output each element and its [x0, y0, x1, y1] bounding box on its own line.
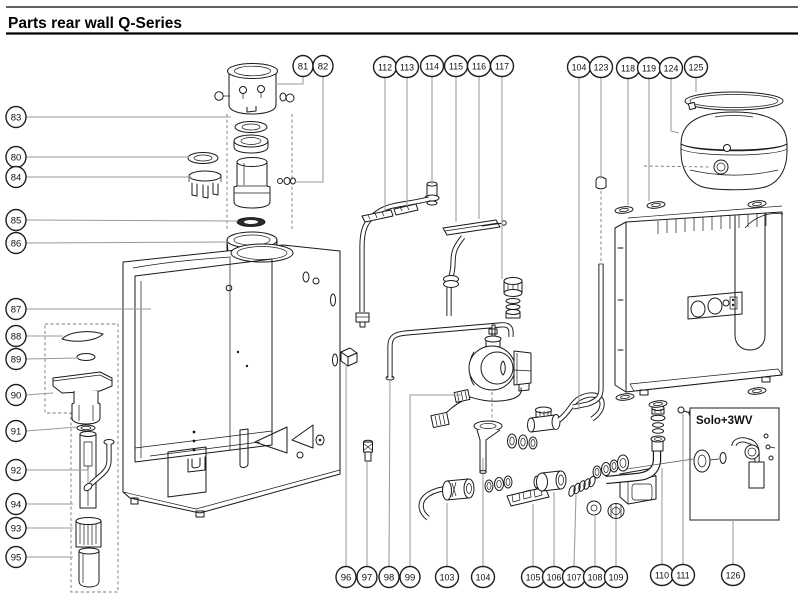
- svg-text:124: 124: [664, 63, 679, 73]
- callout-124: 124: [660, 58, 683, 79]
- callout-83: 83: [6, 107, 26, 128]
- leader-124: [671, 78, 679, 133]
- o-ring-91: [77, 425, 95, 431]
- mounting-ring-124: [685, 92, 783, 110]
- flange-ring: [618, 455, 629, 471]
- callout-94: 94: [6, 494, 26, 515]
- leader-82: [294, 76, 323, 182]
- siphon-manifold-90: [53, 372, 112, 424]
- pump-assembly: [431, 325, 531, 428]
- callout-117: 117: [491, 56, 514, 77]
- siphon-cap-93: [76, 518, 101, 548]
- screw-85-side: [278, 178, 296, 185]
- solo-3wv-box: Solo+3WV: [690, 408, 779, 520]
- nut-109: [608, 504, 624, 519]
- callout-84: 84: [6, 167, 26, 188]
- leader-98: [389, 380, 390, 566]
- svg-text:83: 83: [11, 112, 22, 123]
- svg-text:103: 103: [440, 572, 455, 582]
- svg-text:99: 99: [405, 572, 416, 583]
- svg-text:117: 117: [495, 61, 509, 71]
- page-header: Parts rear wall Q-Series: [6, 7, 798, 34]
- parts-diagram-page: Parts rear wall Q-Series: [0, 0, 800, 600]
- svg-text:115: 115: [449, 61, 463, 71]
- callout-111: 111: [672, 565, 695, 586]
- callout-114: 114: [421, 56, 444, 77]
- svg-text:116: 116: [472, 61, 486, 71]
- svg-text:81: 81: [298, 61, 309, 72]
- svg-text:85: 85: [11, 215, 22, 226]
- svg-text:123: 123: [594, 62, 609, 72]
- svg-text:86: 86: [11, 238, 22, 249]
- callout-104-bottom: 104: [472, 567, 495, 588]
- cable-connector-1: [454, 390, 470, 403]
- svg-text:105: 105: [526, 572, 541, 582]
- svg-text:82: 82: [318, 61, 329, 72]
- callout-96: 96: [336, 567, 356, 588]
- bolt-111: [678, 407, 684, 413]
- svg-text:80: 80: [11, 152, 22, 163]
- callout-108: 108: [584, 567, 607, 588]
- svg-text:111: 111: [676, 570, 689, 580]
- callout-86: 86: [6, 233, 26, 254]
- bracket-115: [443, 220, 506, 235]
- clip-96: [341, 348, 357, 366]
- callout-93: 93: [6, 518, 26, 539]
- leader-91: [26, 427, 77, 431]
- return-pipe: [573, 177, 606, 407]
- callout-116: 116: [468, 56, 491, 77]
- svg-text:87: 87: [11, 304, 22, 315]
- callout-95: 95: [6, 547, 26, 568]
- callout-99: 99: [400, 567, 420, 588]
- callout-92: 92: [6, 460, 26, 481]
- callout-105: 105: [522, 567, 545, 588]
- curved-pipe-117: [444, 237, 464, 316]
- callout-85: 85: [6, 210, 26, 231]
- callout-125: 125: [685, 57, 708, 78]
- diagram-art: Solo+3WV: [53, 64, 787, 588]
- rear-wall-panel: [123, 244, 340, 517]
- svg-text:110: 110: [655, 570, 669, 580]
- coupling-106: [534, 471, 566, 491]
- svg-text:93: 93: [11, 523, 22, 534]
- svg-text:84: 84: [11, 172, 22, 183]
- siphon-cup-95: [79, 548, 99, 587]
- callout-90: 90: [6, 385, 26, 406]
- svg-text:118: 118: [621, 63, 635, 73]
- svg-text:95: 95: [11, 552, 22, 563]
- callout-112: 112: [374, 57, 397, 78]
- svg-text:98: 98: [384, 572, 395, 583]
- leader-90: [26, 393, 53, 395]
- svg-text:91: 91: [11, 426, 22, 437]
- solo-box-label: Solo+3WV: [696, 415, 753, 427]
- flue-cylinder: [234, 158, 270, 209]
- callout-107: 107: [563, 567, 586, 588]
- callout-104-top: 104: [568, 57, 591, 78]
- leader-86: [26, 242, 228, 243]
- svg-text:97: 97: [362, 572, 373, 583]
- plug-84: [189, 171, 221, 198]
- expansion-vessel-group: [681, 92, 787, 190]
- spring-107: [568, 475, 597, 497]
- pump-terminal-box: [514, 351, 531, 385]
- callout-126: 126: [722, 565, 745, 586]
- callout-103: 103: [436, 567, 459, 588]
- callout-98: 98: [379, 567, 399, 588]
- svg-text:112: 112: [378, 62, 392, 72]
- svg-text:89: 89: [11, 354, 22, 365]
- callout-82: 82: [313, 56, 333, 77]
- exploded-parts-diagram: Parts rear wall Q-Series: [0, 0, 800, 600]
- leader-107: [574, 495, 576, 566]
- callout-80: 80: [6, 147, 26, 168]
- side-panel: [615, 200, 783, 408]
- callout-87: 87: [6, 299, 26, 320]
- gasket-ring-85: [234, 135, 268, 147]
- leader-81: [275, 76, 303, 84]
- svg-text:119: 119: [642, 63, 656, 73]
- cap-stack-117: [504, 278, 522, 319]
- svg-text:126: 126: [726, 570, 741, 580]
- callout-123: 123: [590, 57, 613, 78]
- vessel-valve: [714, 160, 728, 174]
- page-title: Parts rear wall Q-Series: [8, 15, 182, 32]
- svg-text:109: 109: [609, 572, 624, 582]
- svg-text:108: 108: [588, 572, 603, 582]
- leader-85: [26, 220, 238, 221]
- screw-right: [280, 93, 286, 101]
- callout-89: 89: [6, 349, 26, 370]
- cap-108: [587, 501, 601, 515]
- svg-text:114: 114: [425, 61, 439, 71]
- gasket-ring-80: [188, 153, 218, 164]
- callout-91: 91: [6, 421, 26, 442]
- callout-115: 115: [445, 56, 468, 77]
- callout-119: 119: [638, 58, 661, 79]
- svg-text:90: 90: [11, 390, 22, 401]
- cable-connector-2: [431, 412, 449, 427]
- callout-109: 109: [605, 567, 628, 588]
- callout-81: 81: [293, 56, 313, 77]
- gasket-ring-83: [235, 122, 267, 133]
- leader-89: [26, 358, 78, 359]
- callout-113: 113: [396, 57, 419, 78]
- expansion-vessel-125: [681, 112, 787, 190]
- svg-text:94: 94: [11, 499, 22, 510]
- svg-text:88: 88: [11, 331, 22, 342]
- gasket-89: [77, 354, 95, 361]
- screw-left: [215, 92, 223, 100]
- flue-adapter-assembly: [188, 64, 296, 254]
- callout-97: 97: [357, 567, 377, 588]
- clip-88: [62, 332, 103, 342]
- svg-text:106: 106: [547, 572, 562, 582]
- svg-text:113: 113: [400, 62, 414, 72]
- sensor-97: [364, 440, 373, 461]
- leader-92: [26, 470, 88, 483]
- svg-text:107: 107: [567, 572, 582, 582]
- callout-88: 88: [6, 326, 26, 347]
- cylinder-103: [443, 479, 475, 500]
- svg-text:104: 104: [476, 572, 491, 582]
- siphon-group: [53, 332, 114, 587]
- svg-text:104: 104: [572, 62, 587, 72]
- callout-118: 118: [617, 58, 640, 79]
- svg-text:92: 92: [11, 465, 22, 476]
- svg-text:96: 96: [341, 572, 352, 583]
- svg-text:125: 125: [689, 62, 704, 72]
- callout-110: 110: [651, 565, 674, 586]
